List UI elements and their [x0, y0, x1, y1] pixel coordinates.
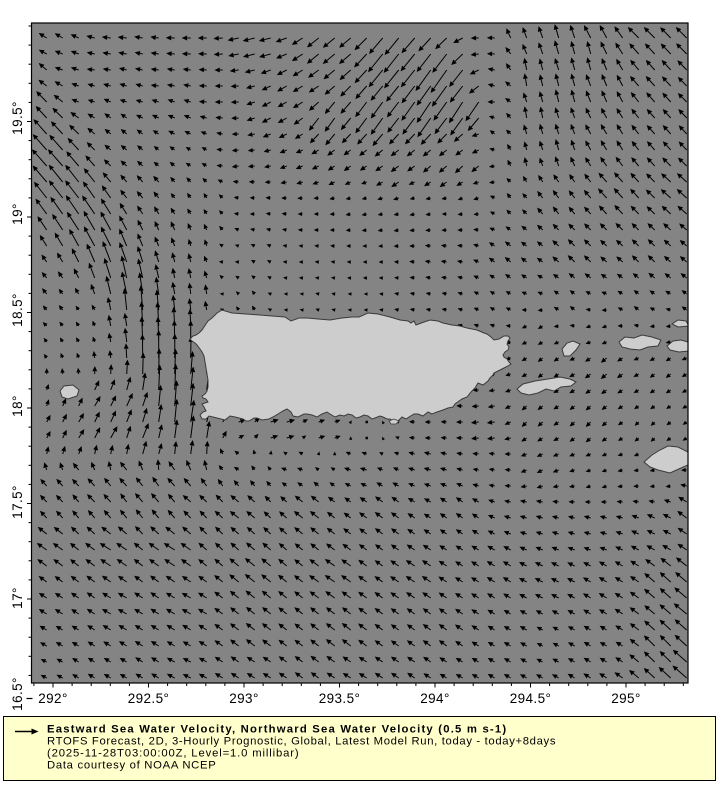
svg-text:18°: 18°	[10, 395, 25, 417]
svg-text:293.5°: 293.5°	[319, 691, 361, 706]
svg-text:Eastward Sea Water Velocity, N: Eastward Sea Water Velocity, Northward S…	[47, 724, 507, 736]
svg-text:295°: 295°	[611, 691, 641, 706]
svg-text:19.5°: 19.5°	[10, 101, 25, 135]
svg-text:17°: 17°	[10, 587, 25, 609]
svg-text:17.5°: 17.5°	[10, 485, 25, 519]
svg-text:RTOFS Forecast, 2D, 3-Hourly P: RTOFS Forecast, 2D, 3-Hourly Prognostic,…	[47, 736, 556, 748]
svg-text:(2025-11-28T03:00:00Z, Level=1: (2025-11-28T03:00:00Z, Level=1.0 milliba…	[47, 748, 299, 760]
svg-text:294°: 294°	[420, 691, 450, 706]
svg-text:294.5°: 294.5°	[510, 691, 552, 706]
svg-text:293°: 293°	[229, 691, 259, 706]
svg-text:292.5°: 292.5°	[128, 691, 170, 706]
svg-text:18.5°: 18.5°	[10, 293, 25, 327]
svg-text:292°: 292°	[38, 691, 68, 706]
svg-text:Data courtesy of NOAA NCEP: Data courtesy of NOAA NCEP	[47, 760, 217, 772]
svg-text:19°: 19°	[10, 203, 25, 225]
svg-text:16.5°: 16.5°	[10, 677, 25, 711]
